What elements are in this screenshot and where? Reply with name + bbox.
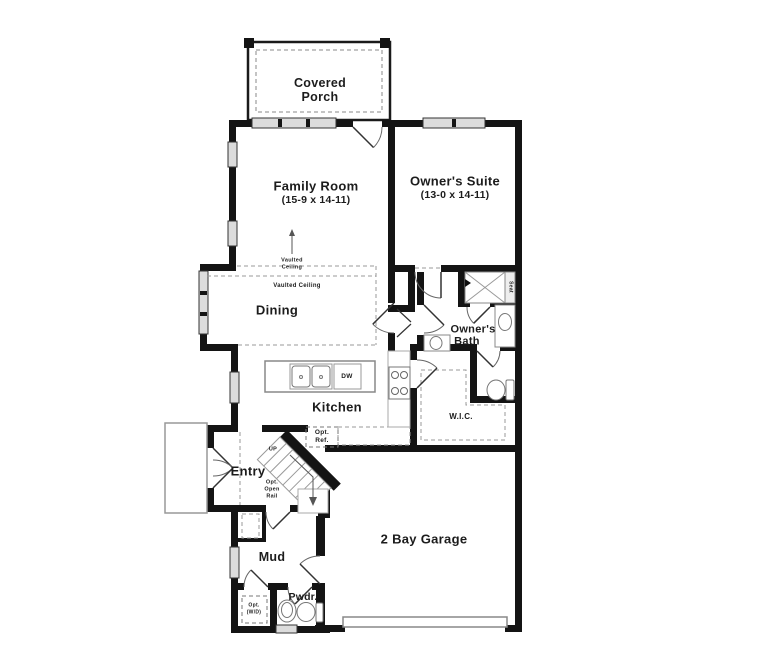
owners-suite-dims: (13-0 x 14-11) xyxy=(421,190,490,201)
pwdr-label: Pwdr. xyxy=(288,592,317,603)
floor-plan-drawing xyxy=(0,0,772,667)
mud-label: Mud xyxy=(259,551,286,564)
family-room-label: Family Room xyxy=(274,180,359,193)
owners-bath-label-2: Bath xyxy=(454,337,480,348)
entry-stoop xyxy=(165,423,207,513)
vaulted-ceiling-arrow xyxy=(289,229,295,254)
wic-door xyxy=(417,360,437,388)
front-door xyxy=(353,127,382,148)
floor-plan: Covered Porch Family Room (15-9 x 14-11)… xyxy=(0,0,772,667)
garage-label: 2 Bay Garage xyxy=(381,533,468,546)
vaulted-dining-label: Vaulted Ceiling xyxy=(273,283,321,289)
kitchen-island xyxy=(265,361,375,392)
bath-door xyxy=(424,305,444,333)
garage-entry-door xyxy=(300,556,320,584)
mud-door xyxy=(266,512,290,529)
covered-porch-label-1: Covered xyxy=(294,77,346,90)
owners-toilet xyxy=(487,380,514,400)
opt-open-rail-label-3: Rail xyxy=(266,494,277,500)
opt-ref-label-2: Ref. xyxy=(315,438,328,445)
covered-porch-label-2: Porch xyxy=(302,91,339,104)
vaulted-family-label-2: Ceiling xyxy=(282,265,302,271)
owners-bath-label-1: Owner's xyxy=(450,325,495,336)
shower-seat-label: Seat xyxy=(508,281,513,293)
opt-open-rail-label-1: Opt. xyxy=(266,480,278,486)
vaulted-family-label-1: Vaulted xyxy=(281,258,303,264)
opt-open-rail-label-2: Open xyxy=(264,487,279,493)
wic-label: W.I.C. xyxy=(449,413,473,421)
powder-toilet xyxy=(297,603,323,623)
owners-suite-label: Owner's Suite xyxy=(410,175,500,188)
toilet-room-door xyxy=(477,351,500,367)
dining-label: Dining xyxy=(256,304,298,317)
opt-wd-label-1: Opt. xyxy=(248,604,259,609)
opt-ref-label-1: Opt. xyxy=(315,430,329,437)
family-room-dims: (15-9 x 14-11) xyxy=(282,195,351,206)
powder-sink xyxy=(278,600,296,622)
stairs-up-label: UP xyxy=(269,447,277,453)
pantry-doors xyxy=(397,309,411,337)
wd-closet-door xyxy=(244,570,268,587)
opt-wd-label-2: (W/D) xyxy=(247,611,262,616)
range xyxy=(389,367,410,399)
garage-door xyxy=(343,617,507,627)
dashed-lines xyxy=(207,266,505,623)
dishwasher-label: DW xyxy=(341,374,352,381)
entry-label: Entry xyxy=(231,465,266,478)
kitchen-label: Kitchen xyxy=(312,401,362,414)
shower-door xyxy=(467,307,490,323)
